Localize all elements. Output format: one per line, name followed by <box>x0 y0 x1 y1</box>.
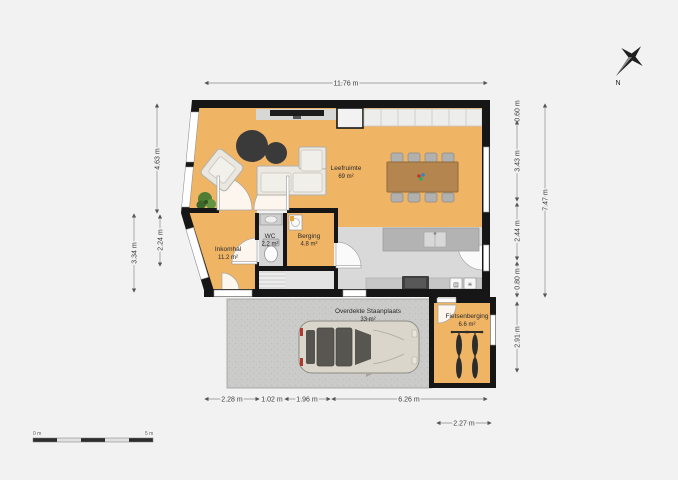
dim-bottom-right: 2.27 m <box>437 421 491 428</box>
tv-stand <box>293 116 301 119</box>
room-area-fietsenberging: 6.6 m² <box>458 322 475 328</box>
svg-text:2.91 m: 2.91 m <box>515 326 522 348</box>
svg-text:2.24 m: 2.24 m <box>158 229 165 251</box>
door-leaf <box>287 176 290 210</box>
dim-left-lower: 3.34 m <box>132 214 139 292</box>
room-area-leefruimte: 69 m² <box>338 174 353 180</box>
scale-end-label: 5 m <box>145 431 153 437</box>
chair <box>442 153 454 162</box>
svg-text:0.60 m: 0.60 m <box>515 100 522 122</box>
dim-bottom-seg3: 1.96 m <box>285 397 330 404</box>
car-taillight <box>300 358 303 366</box>
room-label-inkomhal: Inkomhal <box>215 246 242 253</box>
car-rear-window <box>306 330 315 364</box>
chair <box>425 193 437 202</box>
tv <box>270 110 324 116</box>
car <box>299 317 419 377</box>
dim-right-total: 7.47 m <box>543 104 550 297</box>
north-label: N <box>615 80 620 87</box>
car-windshield <box>355 329 371 365</box>
chair <box>391 153 403 162</box>
room-label-leefruimte: Leefruimte <box>331 165 362 172</box>
car-headlight <box>412 330 417 337</box>
wall-closet <box>337 108 363 128</box>
svg-text:3.34 m: 3.34 m <box>132 242 139 264</box>
chair <box>442 193 454 202</box>
svg-text:6.26 m: 6.26 m <box>398 397 420 404</box>
dim-right-seg1: 0.60 m <box>515 100 522 122</box>
svg-text:2.28 m: 2.28 m <box>221 397 243 404</box>
dim-bottom-seg1: 2.28 m <box>205 397 259 404</box>
landing-floor <box>285 268 334 292</box>
car-headlight <box>412 357 417 364</box>
dim-left-upper: 4.63 m <box>155 104 162 213</box>
car-roof-pane <box>336 328 352 366</box>
svg-text:0.80 m: 0.80 m <box>515 268 522 290</box>
door-leaf <box>232 262 257 265</box>
chair <box>408 153 420 162</box>
room-area-carport: 33 m² <box>360 317 375 323</box>
car-roof-pane <box>317 328 334 366</box>
chair <box>425 153 437 162</box>
room-label-carport: Overdekte Staanplaats <box>335 308 402 315</box>
faucet <box>434 232 437 235</box>
svg-text:1.96 m: 1.96 m <box>296 397 318 404</box>
dim-right-seg3: 2.44 m <box>515 203 522 260</box>
room-area-wc: 2.2 m² <box>261 242 278 248</box>
dim-bottom-seg4: 6.26 m <box>332 397 487 404</box>
chair <box>391 193 403 202</box>
door-leaf <box>437 298 456 303</box>
window <box>214 290 252 297</box>
dim-right-seg4: 0.80 m <box>515 262 522 297</box>
svg-text:2.44 m: 2.44 m <box>515 220 522 242</box>
floorplan-drawing: ▤ ✳ <box>0 0 678 480</box>
toilet-bowl <box>265 246 278 262</box>
dining-table <box>387 162 458 192</box>
svg-text:7.47 m: 7.47 m <box>543 189 550 211</box>
svg-text:11.76 m: 11.76 m <box>334 81 359 88</box>
door-leaf <box>217 176 220 210</box>
door-leaf <box>484 245 490 271</box>
window <box>491 315 496 345</box>
room-area-inkomhal: 11.2 m² <box>218 255 238 261</box>
room-label-fietsenberging: Fietsenberging <box>446 313 489 320</box>
dim-right-seg2: 3.43 m <box>515 121 522 201</box>
door-leaf <box>336 266 361 269</box>
compass: N <box>615 46 642 87</box>
window <box>484 147 490 212</box>
rug <box>236 130 268 162</box>
scale-start-label: 0 m <box>33 431 41 437</box>
chair <box>408 193 420 202</box>
room-area-berging: 4.8 m² <box>300 242 317 248</box>
dim-bottom-seg2: 1.02 m <box>261 397 283 404</box>
door-leaf <box>343 290 366 297</box>
floorplan-canvas: ▤ ✳ <box>0 0 678 480</box>
dim-left-mid: 2.24 m <box>158 215 165 266</box>
top-cabinets <box>364 109 482 126</box>
scale-bar: 0 m 5 m <box>33 431 153 442</box>
svg-text:2.27 m: 2.27 m <box>453 421 475 428</box>
svg-text:1.02 m: 1.02 m <box>261 397 283 404</box>
extractor-icon: ✳ <box>467 282 472 289</box>
dim-top-width: 11.76 m <box>205 81 487 88</box>
car-taillight <box>300 328 303 336</box>
room-label-wc: WC <box>265 233 276 240</box>
dim-right-lower: 2.91 m <box>515 302 522 372</box>
rug-small <box>265 142 287 164</box>
room-label-berging: Berging <box>298 233 321 240</box>
svg-text:3.43 m: 3.43 m <box>515 150 522 172</box>
svg-text:4.63 m: 4.63 m <box>155 148 162 170</box>
compass-star <box>616 46 643 76</box>
dishwasher-icon: ▤ <box>453 283 459 289</box>
